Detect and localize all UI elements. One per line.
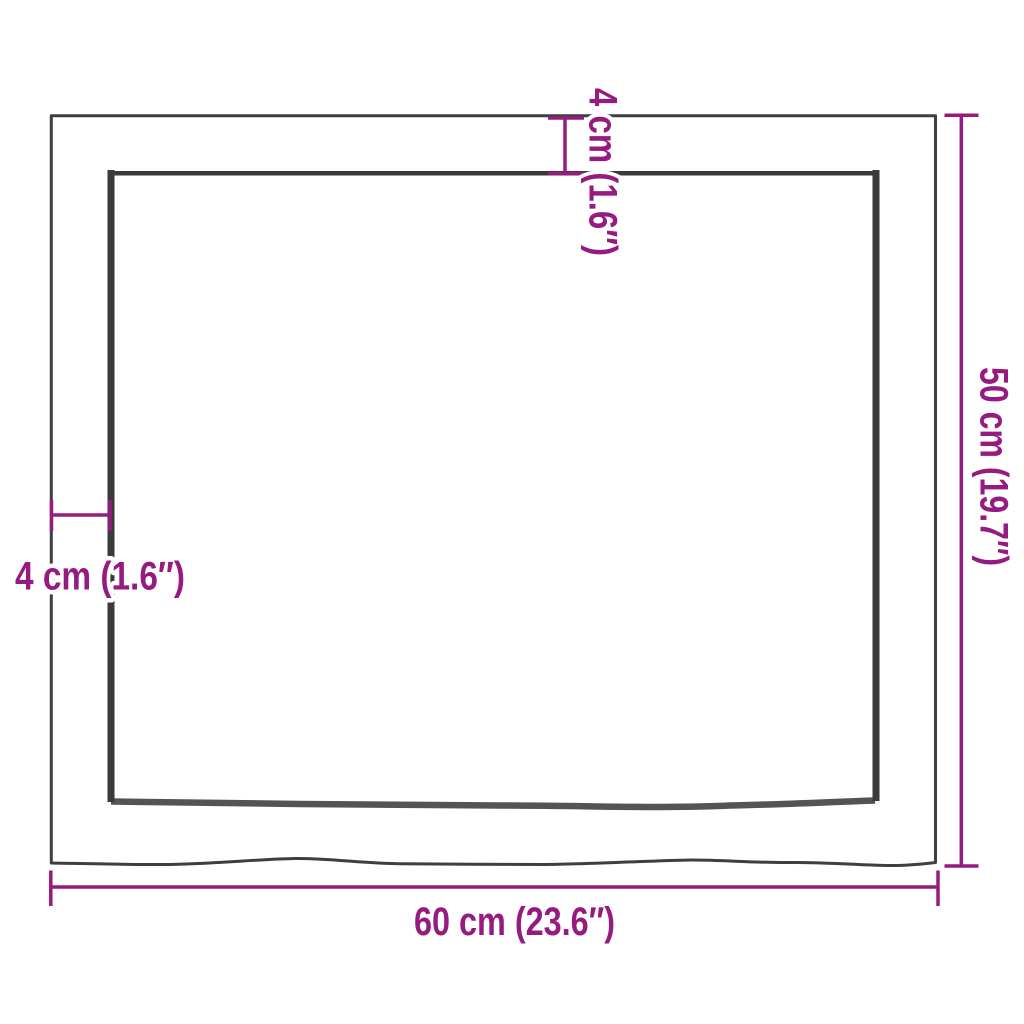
svg-text:60 cm (23.6″): 60 cm (23.6″) bbox=[414, 900, 615, 944]
svg-text:4 cm (1.6″): 4 cm (1.6″) bbox=[581, 88, 625, 256]
svg-text:4 cm (1.6″): 4 cm (1.6″) bbox=[15, 555, 185, 599]
svg-text:50 cm (19.7″): 50 cm (19.7″) bbox=[972, 367, 1016, 566]
